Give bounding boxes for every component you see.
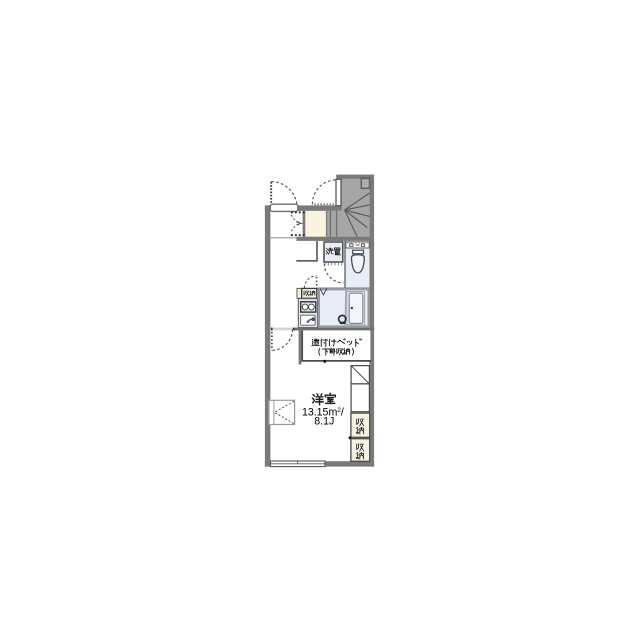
svg-text:8.1J: 8.1J bbox=[314, 416, 334, 428]
